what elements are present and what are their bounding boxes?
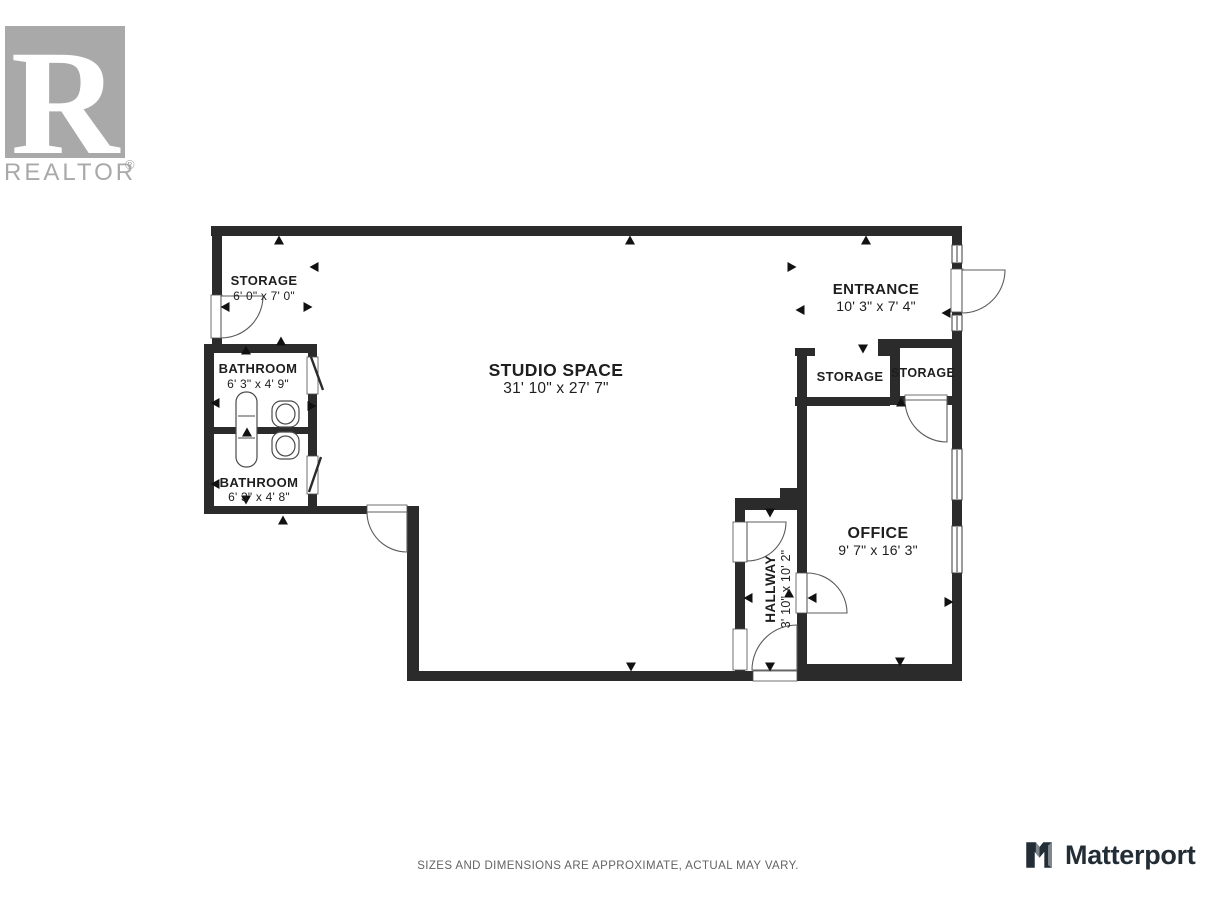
wall	[735, 670, 745, 681]
wall	[952, 500, 962, 526]
dimension-arrow	[942, 308, 951, 318]
wall	[308, 494, 317, 514]
room-dimensions: 6' 3" x 4' 8"	[228, 490, 290, 504]
wall	[407, 671, 745, 681]
floorplan: STORAGE6' 0" x 7' 0"BATHROOM6' 3" x 4' 9…	[0, 0, 1216, 912]
room-name: OFFICE	[847, 525, 908, 542]
wall	[952, 263, 962, 269]
room-label: STORAGE	[891, 366, 955, 380]
wall	[797, 348, 807, 573]
wall	[952, 236, 962, 245]
room-name: BATHROOM	[220, 475, 299, 490]
wall	[735, 498, 797, 510]
wall	[735, 562, 745, 629]
wall	[308, 344, 317, 357]
dimension-arrow	[765, 509, 775, 518]
dimension-arrow	[304, 302, 313, 312]
door-jamb	[753, 671, 797, 681]
door-jamb	[733, 629, 747, 670]
wall	[795, 348, 815, 356]
room-dimensions: 10' 3" x 7' 4"	[836, 298, 916, 314]
room-name: HALLWAY	[763, 555, 778, 623]
door-jamb	[733, 522, 747, 562]
toilet-bowl	[276, 404, 295, 424]
room-dimensions: 3' 10" x 10' 2"	[779, 550, 793, 629]
matterport-wordmark: Matterport	[1065, 840, 1196, 871]
room-label: ENTRANCE10' 3" x 7' 4"	[833, 281, 920, 314]
room-label: STORAGE6' 0" x 7' 0"	[231, 273, 298, 303]
door-arc	[962, 270, 1005, 313]
door-arc	[807, 573, 847, 613]
room-name: STORAGE	[817, 369, 884, 384]
room-dimensions: 6' 0" x 7' 0"	[233, 289, 295, 303]
room-label: BATHROOM6' 3" x 4' 9"	[219, 361, 298, 391]
wall	[795, 397, 890, 406]
dimension-arrow	[858, 345, 868, 354]
dimension-arrow	[274, 236, 284, 245]
door-arc	[367, 512, 407, 552]
dimension-arrow	[796, 305, 805, 315]
wall	[212, 226, 222, 295]
wall	[204, 506, 367, 514]
room-label: HALLWAY3' 10" x 10' 2"	[763, 550, 793, 629]
room-label: STUDIO SPACE31' 10" x 27' 7"	[489, 360, 624, 397]
room-label: STORAGE	[817, 369, 884, 384]
room-label: OFFICE9' 7" x 16' 3"	[838, 525, 918, 558]
wall	[211, 226, 962, 236]
room-name: STORAGE	[891, 366, 955, 380]
dimension-arrow	[276, 337, 286, 346]
wall	[407, 506, 419, 681]
dimension-arrow	[310, 262, 319, 272]
wall	[952, 331, 962, 449]
wall	[204, 344, 317, 353]
room-dimensions: 6' 3" x 4' 9"	[227, 377, 289, 391]
door-jamb	[951, 269, 963, 312]
door-jamb	[211, 295, 222, 338]
wall	[890, 339, 952, 348]
room-dimensions: 9' 7" x 16' 3"	[838, 542, 918, 558]
door-jamb	[307, 456, 318, 494]
dimension-arrow	[278, 516, 288, 525]
wall	[800, 664, 962, 681]
page: R REALTOR ® STORAGE6' 0" x 7' 0"BATHROOM…	[0, 0, 1216, 912]
matterport-logo: Matterport	[1022, 838, 1196, 872]
dimension-arrow	[788, 262, 797, 272]
door-arc	[905, 400, 947, 442]
room-name: STORAGE	[231, 273, 298, 288]
matterport-icon	[1022, 838, 1056, 872]
door-jamb	[796, 573, 808, 613]
room-dimensions: 31' 10" x 27' 7"	[503, 380, 608, 397]
wall	[204, 344, 214, 514]
room-name: ENTRANCE	[833, 281, 920, 298]
dimension-arrow	[861, 236, 871, 245]
dimension-arrow	[625, 236, 635, 245]
room-label: BATHROOM6' 3" x 4' 8"	[220, 475, 299, 504]
room-name: BATHROOM	[219, 361, 298, 376]
wall	[745, 671, 753, 681]
wall	[878, 339, 890, 356]
room-name: STUDIO SPACE	[489, 360, 624, 380]
dimension-arrow	[626, 663, 636, 672]
toilet-bowl	[276, 436, 295, 456]
